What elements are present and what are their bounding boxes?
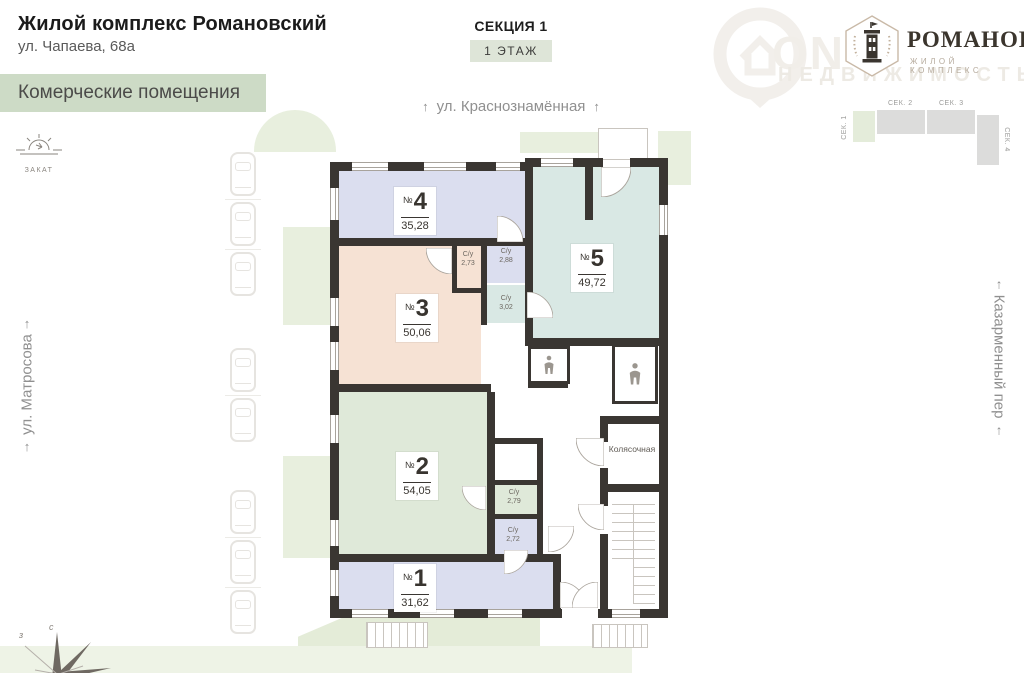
street-arrow-icon: ↑ (988, 422, 1011, 437)
room-number: 1 (414, 565, 427, 592)
wall (600, 484, 668, 492)
window (330, 520, 339, 546)
street-label-right: ↑Казарменный пер↑ (991, 207, 1008, 507)
stair-treads (634, 504, 655, 612)
wall (600, 468, 608, 506)
wall (585, 158, 593, 220)
entrance-porch (598, 128, 648, 160)
minimap-label-sec1: СЕК. 1 (841, 115, 848, 140)
window (659, 205, 668, 235)
street-arrow-icon: ↑ (988, 276, 1011, 291)
door-arc (601, 167, 631, 197)
wall (330, 162, 339, 618)
window (330, 570, 339, 596)
compass-letter-n: с (49, 622, 54, 632)
car-icon (230, 398, 256, 442)
landscaping (520, 132, 598, 153)
door-arc (527, 292, 553, 318)
wall (492, 514, 543, 519)
street-arrow-icon: ↑ (16, 439, 39, 454)
bathroom-label: С/у2,88 (492, 247, 520, 265)
car-icon (230, 202, 256, 246)
street-arrow-icon: ↑ (16, 315, 39, 330)
car-icon (230, 152, 256, 196)
minimap-section-1[interactable] (853, 111, 875, 142)
number-sign: № (580, 252, 590, 262)
wall (537, 442, 543, 484)
room-number: 4 (414, 188, 427, 215)
window (488, 609, 522, 618)
wall (487, 392, 495, 554)
floor-plan-page: ON НЕДВИЖИМОСТЬ Жилой комплекс Романовск… (0, 0, 1024, 673)
landscaping (254, 110, 336, 152)
room-label-2[interactable]: №2 54,05 (396, 452, 438, 500)
window (352, 609, 388, 618)
room-number: 3 (416, 295, 429, 322)
bathroom-label: С/у2,72 (499, 526, 527, 544)
car-icon (230, 590, 256, 634)
elevator-person-icon (628, 362, 642, 386)
street-label-left: ↑ул. Матросова↑ (19, 235, 36, 535)
compass-letter-w: з (18, 630, 23, 640)
sunset-label: ЗАКАТ (14, 167, 64, 174)
room-label-1[interactable]: №1 31,62 (394, 564, 436, 612)
minimap-label-sec2: СЕК. 2 (888, 100, 913, 107)
minimap-section-3[interactable] (927, 110, 975, 134)
stroller-room-label: Колясочная (598, 444, 666, 454)
bathroom-label: С/у3,02 (492, 294, 520, 312)
parking-slot-divider (225, 537, 261, 538)
room-area: 50,06 (403, 325, 431, 339)
window (541, 158, 573, 167)
room-area: 35,28 (401, 218, 429, 232)
entrance-steps (592, 624, 648, 648)
street-label-top: ↑ул. Краснознамённая↑ (361, 98, 661, 115)
window (424, 162, 466, 171)
section-title: СЕКЦИЯ 1 (411, 18, 611, 34)
banner-commercial-premises: Комерческие помещения (0, 74, 266, 112)
street-arrow-icon: ↑ (585, 99, 608, 114)
room-area: 54,05 (403, 483, 431, 497)
car-icon (230, 252, 256, 296)
minimap-label-sec4: СЕК. 4 (1003, 127, 1010, 152)
room-label-3[interactable]: №3 50,06 (396, 294, 438, 342)
window (330, 415, 339, 443)
stair-treads (612, 504, 633, 566)
room-area: 31,62 (401, 595, 429, 609)
romanovsky-logo-icon (843, 14, 901, 78)
parking-slot-divider (225, 395, 261, 396)
landscaping (283, 227, 330, 325)
compass-rose-icon: з с (5, 622, 115, 673)
wall (487, 438, 543, 444)
door-arc (578, 504, 604, 530)
minimap-section-4[interactable] (977, 115, 999, 165)
stair-divider (633, 504, 634, 604)
bathroom-label: С/у2,73 (454, 250, 482, 268)
sunset-icon (14, 126, 64, 160)
room-number: 2 (416, 453, 429, 480)
number-sign: № (405, 302, 415, 312)
room-label-5[interactable]: №5 49,72 (571, 244, 613, 292)
door-arc (497, 216, 523, 242)
window (330, 298, 339, 326)
elevator (612, 344, 658, 404)
door-arc (426, 248, 452, 274)
floor-badge[interactable]: 1 ЭТАЖ (470, 40, 552, 62)
landscaping (283, 456, 330, 558)
car-icon (230, 540, 256, 584)
room-number: 5 (591, 245, 604, 272)
staircase (608, 492, 659, 609)
logo-subtitle: ЖИЛОЙ КОМПЛЕКС (910, 57, 1024, 75)
section-floor-block: СЕКЦИЯ 1 1 ЭТАЖ (411, 18, 611, 62)
door-arc (572, 582, 598, 608)
window (330, 342, 339, 370)
door-arc (504, 550, 528, 574)
minimap-label-sec3: СЕК. 3 (939, 100, 964, 107)
window (612, 609, 640, 618)
window (496, 162, 520, 171)
address: ул. Чапаева, 68а (18, 38, 135, 55)
entrance-steps (366, 622, 428, 648)
number-sign: № (403, 195, 413, 205)
parking-slot-divider (225, 199, 261, 200)
door-arc (548, 526, 574, 552)
number-sign: № (405, 460, 415, 470)
door-arc (462, 486, 486, 510)
number-sign: № (403, 572, 413, 582)
sunset-indicator: ЗАКАТ (14, 126, 64, 174)
wall (487, 480, 543, 485)
window (330, 188, 339, 220)
parking-slot-divider (225, 587, 261, 588)
elevator (528, 346, 570, 384)
elevator-person-icon (543, 355, 555, 375)
wall (452, 288, 487, 293)
wall (339, 384, 491, 392)
page-title: Жилой комплекс Романовский (18, 13, 327, 36)
minimap-section-2[interactable] (877, 110, 925, 134)
logo-name: РОМАНОВСКИЙ (907, 27, 1024, 53)
room-label-4[interactable]: №4 35,28 (394, 187, 436, 235)
car-icon (230, 490, 256, 534)
wall (600, 416, 668, 424)
car-icon (230, 348, 256, 392)
bathroom-label: С/у2,79 (500, 488, 528, 506)
room-area: 49,72 (578, 275, 606, 289)
wall (600, 534, 608, 616)
window (352, 162, 388, 171)
street-arrow-icon: ↑ (414, 99, 437, 114)
parking-slot-divider (225, 249, 261, 250)
